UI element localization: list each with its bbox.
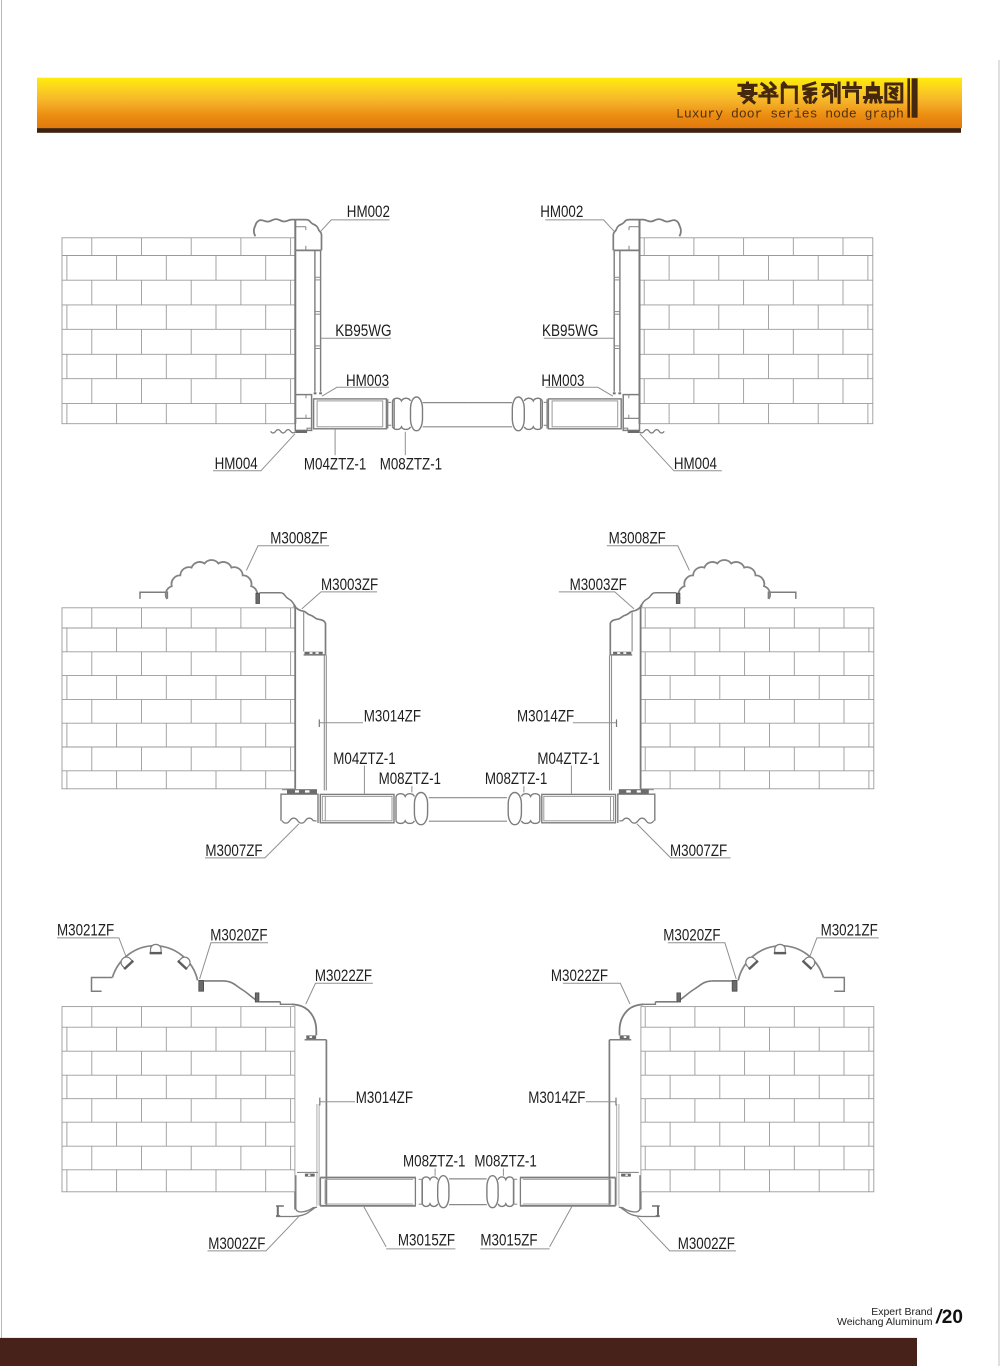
svg-text:M3002ZF: M3002ZF — [208, 1235, 265, 1253]
svg-text:KB95WG: KB95WG — [542, 322, 598, 340]
svg-text:Weichang Aluminum: Weichang Aluminum — [837, 1316, 933, 1328]
svg-text:M3020ZF: M3020ZF — [210, 927, 267, 945]
svg-text:HM002: HM002 — [540, 203, 583, 221]
svg-text:M3007ZF: M3007ZF — [670, 842, 727, 860]
svg-text:HM004: HM004 — [674, 455, 717, 473]
svg-text:M08ZTZ-1: M08ZTZ-1 — [379, 770, 441, 788]
svg-text:KB95WG: KB95WG — [335, 322, 391, 340]
svg-text:M3015ZF: M3015ZF — [398, 1231, 455, 1249]
svg-text:M3007ZF: M3007ZF — [205, 842, 262, 860]
svg-text:M3022ZF: M3022ZF — [551, 967, 608, 985]
svg-text:HM004: HM004 — [215, 455, 258, 473]
svg-text:M3014ZF: M3014ZF — [356, 1089, 413, 1107]
svg-text:HM002: HM002 — [347, 203, 390, 221]
svg-text:M3021ZF: M3021ZF — [821, 922, 878, 940]
svg-text:Luxury door series node graph: Luxury door series node graph — [676, 107, 904, 122]
svg-text:M3014ZF: M3014ZF — [517, 708, 574, 726]
svg-text:M3022ZF: M3022ZF — [315, 967, 372, 985]
svg-text:M04ZTZ-1: M04ZTZ-1 — [333, 750, 395, 768]
svg-text:M08ZTZ-1: M08ZTZ-1 — [380, 456, 442, 474]
svg-text:M3008ZF: M3008ZF — [609, 530, 666, 548]
svg-text:M3003ZF: M3003ZF — [321, 576, 378, 594]
svg-text:M3020ZF: M3020ZF — [663, 927, 720, 945]
svg-text:M04ZTZ-1: M04ZTZ-1 — [537, 750, 599, 768]
svg-text:M3003ZF: M3003ZF — [570, 576, 627, 594]
svg-text:M3002ZF: M3002ZF — [678, 1235, 735, 1253]
svg-text:M3014ZF: M3014ZF — [528, 1089, 585, 1107]
svg-text:/20: /20 — [935, 1307, 963, 1328]
svg-text:M08ZTZ-1: M08ZTZ-1 — [485, 770, 547, 788]
svg-text:M08ZTZ-1: M08ZTZ-1 — [474, 1152, 536, 1170]
svg-text:M04ZTZ-1: M04ZTZ-1 — [304, 456, 366, 474]
svg-text:M08ZTZ-1: M08ZTZ-1 — [403, 1152, 465, 1170]
svg-text:M3021ZF: M3021ZF — [57, 922, 114, 940]
svg-text:M3015ZF: M3015ZF — [480, 1231, 537, 1249]
svg-text:M3008ZF: M3008ZF — [270, 530, 327, 548]
svg-text:M3014ZF: M3014ZF — [364, 708, 421, 726]
